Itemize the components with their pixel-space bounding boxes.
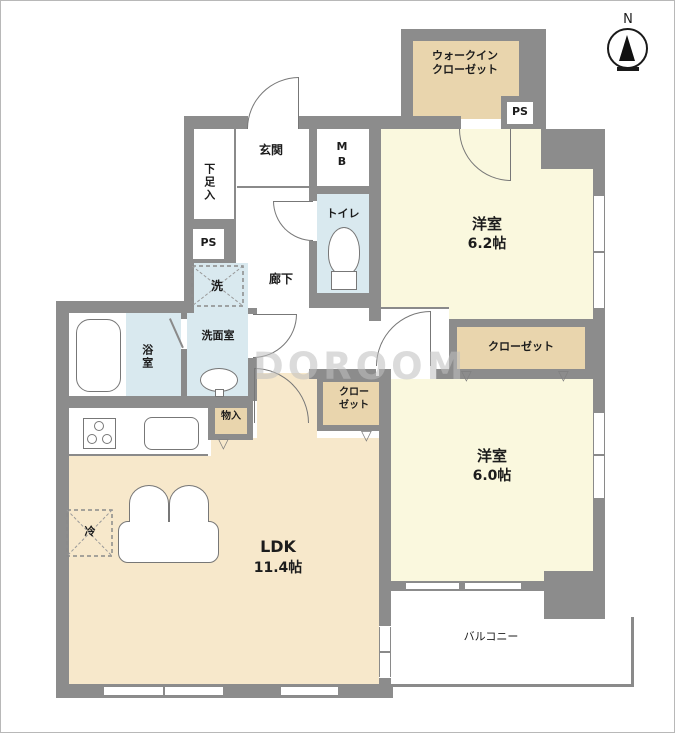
floor-plan: ▽ ▽ ▽ ▽ ウォークイン クローゼット PS 洋室 6.2帖 玄関 下足入 …: [0, 0, 675, 733]
counter-edge-line: [69, 454, 208, 456]
partition-line: [381, 307, 449, 309]
partition-line: [181, 349, 187, 396]
closet-small-label: クロー ゼット: [323, 387, 385, 412]
wall-segment: [379, 678, 391, 698]
hallway-label: 廊下: [261, 272, 301, 287]
stove-burner: [94, 421, 104, 431]
closet-small-line1: クロー: [339, 387, 369, 398]
western-room-1-label: 洋室 6.2帖: [427, 215, 547, 253]
wall-segment: [401, 29, 413, 129]
window-mullion: [593, 251, 605, 253]
closet-wide-label: クローゼット: [457, 340, 585, 354]
wall-segment: [69, 396, 251, 408]
wall-segment: [299, 116, 461, 129]
window: [406, 582, 459, 590]
window-mullion: [593, 454, 605, 456]
ldk-size: 11.4帖: [254, 560, 303, 576]
fridge-label: 冷: [78, 525, 102, 539]
wic-line1: ウォークイン: [432, 49, 498, 62]
washer-label: 洗: [204, 279, 230, 294]
ldk-name: LDK: [260, 537, 296, 556]
compass-base-tick: [617, 67, 639, 71]
partition-line: [234, 129, 236, 219]
stove-burner: [87, 434, 97, 444]
western2-name: 洋室: [477, 447, 507, 465]
window-mullion: [163, 686, 165, 696]
meter-box-label: MB: [335, 139, 349, 169]
ldk-label: LDK 11.4帖: [223, 537, 333, 578]
western-room-2-label: 洋室 6.0帖: [432, 447, 552, 485]
storage-label: 物入: [214, 411, 248, 424]
toilet-door-arc: [273, 201, 313, 241]
wall-segment: [309, 186, 376, 194]
western2-size: 6.0帖: [473, 468, 512, 484]
counter-flap: [169, 485, 209, 522]
wic-line2: クローゼット: [432, 63, 498, 76]
washbasin-pedestal: [215, 389, 224, 397]
wall-segment: [56, 301, 187, 313]
entrance-label: 玄関: [249, 143, 293, 158]
window: [465, 582, 521, 590]
watermark: DOROOM: [253, 345, 467, 388]
ps-top-label: PS: [507, 105, 533, 119]
ps-left-label: PS: [193, 236, 224, 250]
wall-segment: [593, 308, 605, 413]
ldk-floor: [211, 438, 379, 456]
toilet-tank: [331, 271, 357, 290]
partition-line: [181, 313, 187, 319]
stove-burner: [102, 434, 112, 444]
balcony-rail: [631, 617, 634, 687]
wall-segment: [593, 169, 605, 196]
shoe-storage-label: 下足入: [202, 149, 216, 215]
wall-segment: [369, 129, 381, 321]
western1-size: 6.2帖: [468, 236, 507, 252]
counter-flap: [129, 485, 169, 522]
window-mullion: [379, 651, 391, 653]
window: [281, 686, 338, 696]
entrance-door-arc: [247, 77, 299, 129]
wall-segment: [56, 301, 69, 698]
wall-segment: [593, 498, 605, 571]
toilet-bowl: [328, 227, 360, 275]
counter: [118, 521, 219, 563]
wall-segment: [541, 129, 605, 169]
folding-door-marker: ▽: [361, 429, 372, 443]
balcony-rail: [391, 684, 634, 687]
folding-door-marker: ▽: [558, 369, 569, 383]
kitchen-sink: [144, 417, 199, 450]
wall-segment: [544, 571, 605, 619]
western1-name: 洋室: [472, 215, 502, 233]
bathroom-label: 浴室: [140, 333, 154, 381]
walk-in-closet-label: ウォークイン クローゼット: [409, 49, 521, 77]
wall-segment: [519, 29, 546, 104]
washroom-label: 洗面室: [189, 329, 247, 343]
closet-small-line2: ゼット: [339, 400, 369, 411]
entrance-step-line: [237, 186, 311, 188]
compass-north-arrow-icon: [619, 35, 635, 61]
bathtub: [76, 319, 121, 392]
folding-door-marker: ▽: [218, 437, 229, 451]
toilet-label: トイレ: [325, 207, 361, 221]
balcony-label: バルコニー: [441, 630, 541, 644]
compass-n-label: N: [616, 12, 640, 28]
